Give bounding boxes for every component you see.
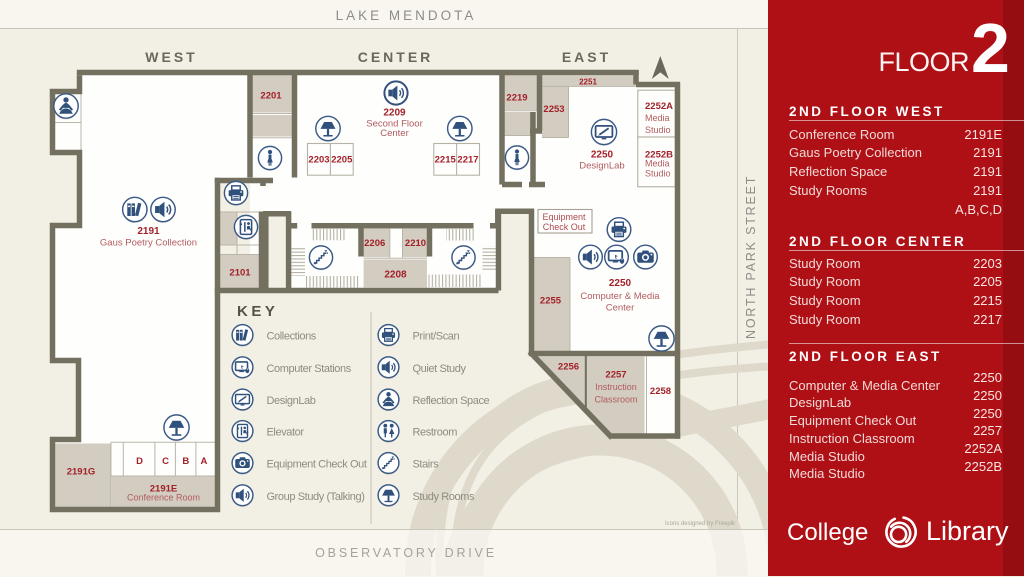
svg-text:2203: 2203	[308, 155, 329, 166]
svg-text:Center: Center	[380, 128, 409, 139]
svg-text:Study Rooms: Study Rooms	[413, 491, 476, 503]
svg-text:2209: 2209	[383, 108, 406, 119]
svg-text:Center: Center	[606, 303, 635, 314]
svg-text:Equipment: Equipment	[542, 212, 586, 222]
svg-text:2251: 2251	[579, 77, 597, 86]
svg-text:WEST: WEST	[145, 49, 197, 65]
svg-text:A: A	[200, 456, 207, 467]
svg-text:Restroom: Restroom	[413, 427, 458, 439]
svg-text:DesignLab: DesignLab	[579, 161, 624, 172]
svg-text:2217: 2217	[457, 155, 478, 166]
svg-text:2255: 2255	[540, 296, 562, 307]
svg-text:2191: 2191	[137, 226, 160, 237]
svg-text:2201: 2201	[260, 91, 282, 102]
svg-text:2256: 2256	[558, 362, 579, 373]
svg-text:Gaus Poetry Collection: Gaus Poetry Collection	[100, 238, 197, 249]
svg-text:EAST: EAST	[562, 49, 611, 65]
svg-text:Media: Media	[645, 159, 670, 169]
svg-text:2101: 2101	[229, 268, 251, 279]
svg-text:2215: 2215	[435, 155, 457, 166]
svg-text:2252A: 2252A	[645, 101, 673, 112]
svg-text:2257: 2257	[605, 370, 626, 381]
svg-text:Classroom: Classroom	[594, 395, 637, 405]
svg-text:2258: 2258	[650, 386, 671, 397]
svg-text:2219: 2219	[506, 93, 527, 104]
svg-text:Group Study (Talking): Group Study (Talking)	[267, 491, 365, 503]
svg-text:Computer & Media: Computer & Media	[580, 291, 660, 302]
svg-text:2191G: 2191G	[67, 467, 96, 478]
svg-text:KEY: KEY	[237, 303, 278, 320]
svg-text:CENTER: CENTER	[358, 49, 434, 65]
svg-text:Check Out: Check Out	[543, 222, 586, 232]
svg-text:2250: 2250	[609, 278, 632, 289]
svg-text:D: D	[136, 456, 143, 467]
svg-text:Equipment Check Out: Equipment Check Out	[267, 459, 367, 471]
svg-text:Quiet Study: Quiet Study	[413, 363, 467, 375]
svg-text:Elevator: Elevator	[267, 427, 305, 439]
svg-text:Studio: Studio	[645, 169, 671, 179]
svg-text:Conference Room: Conference Room	[127, 493, 200, 503]
svg-text:2205: 2205	[331, 155, 353, 166]
svg-text:2208: 2208	[384, 270, 407, 281]
svg-text:B: B	[182, 456, 189, 467]
svg-text:Collections: Collections	[267, 331, 317, 343]
svg-text:Reflection Space: Reflection Space	[413, 395, 490, 407]
svg-text:2210: 2210	[405, 238, 426, 249]
svg-text:Instruction: Instruction	[595, 382, 637, 392]
svg-text:2206: 2206	[364, 238, 385, 249]
svg-text:2253: 2253	[543, 104, 564, 115]
svg-text:Studio: Studio	[645, 125, 671, 135]
svg-text:Stairs: Stairs	[413, 459, 440, 471]
svg-text:2250: 2250	[591, 150, 614, 161]
svg-text:Print/Scan: Print/Scan	[413, 331, 460, 343]
svg-text:Computer Stations: Computer Stations	[267, 363, 352, 375]
svg-text:Media: Media	[645, 113, 670, 123]
svg-text:DesignLab: DesignLab	[267, 395, 316, 407]
svg-text:C: C	[162, 456, 169, 467]
